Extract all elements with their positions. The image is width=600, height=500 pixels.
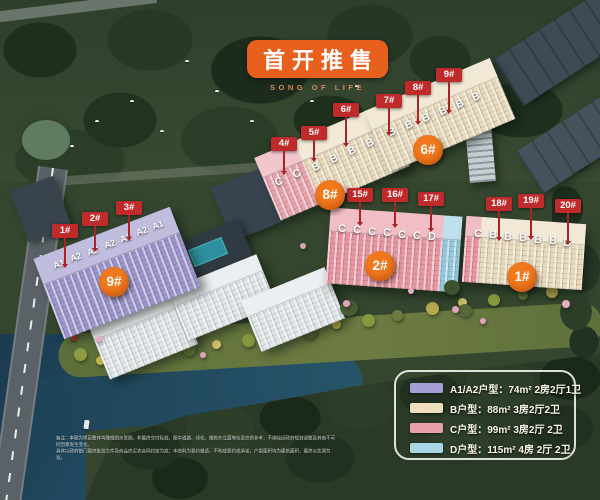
unit-flag-17: 17#	[418, 192, 444, 228]
tree-blob	[74, 348, 87, 361]
unit-flag-7: 7#	[376, 94, 402, 132]
flag-pole	[128, 215, 130, 237]
flag-label: 4#	[271, 137, 297, 151]
flag-pole	[94, 226, 96, 248]
legend-swatch-d	[410, 443, 443, 453]
bird-icon	[185, 60, 189, 62]
tree-blob	[362, 314, 375, 327]
unit-flag-18: 18#	[486, 197, 512, 237]
flag-label: 20#	[555, 199, 581, 213]
legend-swatch-c	[410, 423, 443, 433]
bird-icon	[160, 130, 164, 132]
flag-label: 16#	[382, 188, 408, 202]
flag-label: 7#	[376, 94, 402, 108]
tree-blob	[488, 294, 500, 306]
roof-label: C	[473, 228, 482, 241]
building-circle-8: 8#	[315, 180, 345, 210]
blossom-tree	[408, 288, 414, 294]
flag-label: 3#	[116, 201, 142, 215]
unit-flag-3: 3#	[116, 201, 142, 237]
bird-icon	[250, 120, 254, 122]
bird-icon	[95, 120, 99, 122]
flag-label: 8#	[405, 81, 431, 95]
swimming-pool	[188, 237, 228, 267]
flag-pole	[388, 108, 390, 132]
flag-pole	[394, 202, 396, 224]
flag-label: 1#	[52, 224, 78, 238]
tree-blob	[392, 310, 403, 321]
flag-label: 6#	[333, 103, 359, 117]
disclaimer: 备注：本图为项目整体鸟瞰规划示意图，非最终交付标准，图中道路、绿化、楼栋外立面等…	[56, 435, 336, 461]
subtitle-text: SONG OF LIFE	[247, 83, 388, 92]
aerial-site-plan: A1 A2 A2 A2 A2 A2 A1 C C B B B B B B B B…	[0, 0, 600, 500]
unit-flag-8: 8#	[405, 81, 431, 121]
flag-pole	[430, 206, 432, 228]
disclaimer-line-1: 备注：本图为项目整体鸟瞰规划示意图，非最终交付标准，图中道路、绿化、楼栋外立面等…	[56, 435, 336, 448]
building-circle-1: 1#	[507, 262, 537, 292]
roof-label: C	[367, 226, 376, 239]
building-circle-6: 6#	[413, 135, 443, 165]
flag-pole	[567, 213, 569, 241]
tree-blob	[444, 280, 460, 295]
roof-label: C	[397, 229, 406, 242]
blossom-tree	[480, 318, 486, 324]
legend-row-c: C户型：99m² 3房2厅 2卫	[410, 418, 574, 438]
flag-pole	[417, 95, 419, 121]
flag-label: 5#	[301, 126, 327, 140]
bird-icon	[310, 100, 314, 102]
bird-icon	[215, 90, 219, 92]
building-circle-9: 9#	[99, 267, 129, 297]
tree-blob	[458, 304, 472, 317]
unit-flag-16: 16#	[382, 188, 408, 224]
unit-flag-19: 19#	[518, 194, 544, 236]
legend-swatch-b	[410, 403, 443, 413]
tree-blob	[212, 340, 221, 349]
flag-label: 17#	[418, 192, 444, 206]
blossom-tree	[562, 300, 570, 308]
unit-flag-15: 15#	[347, 188, 373, 222]
legend-label-b: B户型：88m² 3房2厅2卫	[450, 401, 560, 416]
title-banner: 首开推售	[247, 40, 388, 78]
legend-swatch-a1a2	[410, 383, 443, 393]
flag-pole	[359, 202, 361, 222]
legend-row-d: D户型：115m² 4房 2厅 2卫	[410, 438, 574, 458]
unit-flag-2: 2#	[82, 212, 108, 248]
blossom-tree	[343, 300, 350, 307]
legend-label-c: C户型：99m² 3房2厅 2卫	[450, 421, 563, 436]
tree-blob	[426, 302, 439, 315]
building-circle-2: 2#	[365, 251, 395, 281]
unit-flag-20: 20#	[555, 199, 581, 241]
flag-pole	[498, 211, 500, 237]
legend-label-d: D户型：115m² 4房 2厅 2卫	[450, 441, 571, 456]
flag-label: 18#	[486, 197, 512, 211]
roof-label: C	[337, 223, 346, 236]
legend-row-a: A1/A2户型：74m² 2房2厅1卫	[410, 378, 574, 398]
pond	[22, 120, 70, 160]
legend-label-a1a2: A1/A2户型：74m² 2房2厅1卫	[450, 381, 581, 396]
flag-pole	[530, 208, 532, 236]
bird-icon	[130, 100, 134, 102]
flag-pole	[283, 151, 285, 171]
page-title: 首开推售	[263, 43, 379, 75]
flag-pole	[64, 238, 66, 264]
roof-label: D	[427, 231, 436, 244]
blossom-tree	[300, 243, 306, 249]
blossom-tree	[200, 352, 206, 358]
disclaimer-line-2: 具体以政府部门最终批准文件及商品房买卖合同约定为准；本资料为要约邀请，不构成要约…	[56, 448, 336, 461]
unit-flag-1: 1#	[52, 224, 78, 264]
blossom-tree	[452, 306, 459, 313]
roof-label: C	[382, 227, 391, 240]
flag-pole	[313, 140, 315, 158]
blossom-tree	[96, 336, 102, 342]
flag-pole	[345, 117, 347, 143]
flag-label: 15#	[347, 188, 373, 202]
flag-label: 9#	[436, 68, 462, 82]
flag-label: 2#	[82, 212, 108, 226]
unit-flag-6: 6#	[333, 103, 359, 143]
legend-row-b: B户型：88m² 3房2厅2卫	[410, 398, 574, 418]
unit-flag-4: 4#	[271, 137, 297, 171]
flag-pole	[448, 82, 450, 110]
unit-flag-5: 5#	[301, 126, 327, 158]
legend-panel: A1/A2户型：74m² 2房2厅1卫 B户型：88m² 3房2厅2卫 C户型：…	[394, 370, 576, 460]
bird-icon	[70, 145, 74, 147]
roof-label: C	[412, 230, 421, 243]
unit-flag-9: 9#	[436, 68, 462, 110]
tree-blob	[242, 334, 255, 347]
flag-label: 19#	[518, 194, 544, 208]
